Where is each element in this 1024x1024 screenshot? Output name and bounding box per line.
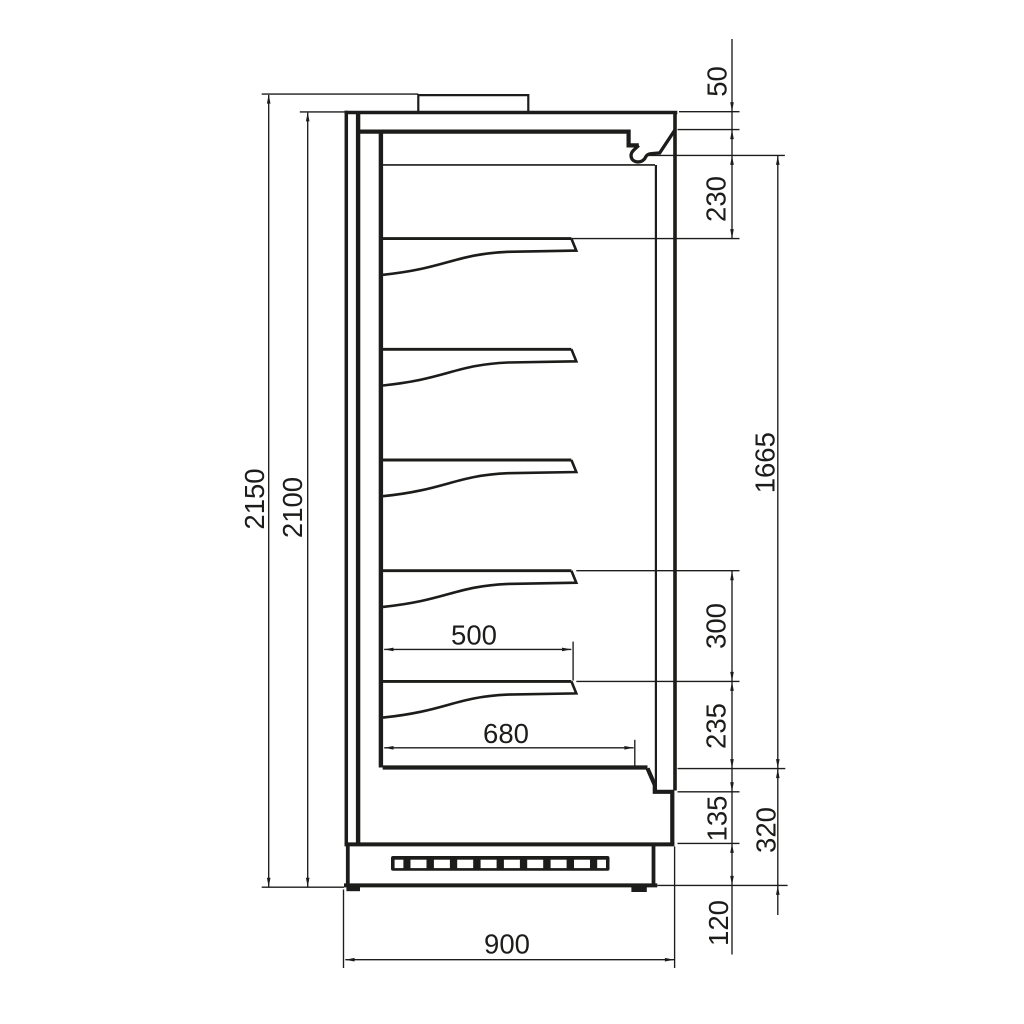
svg-text:680: 680 bbox=[483, 718, 529, 749]
svg-text:2150: 2150 bbox=[239, 468, 270, 529]
svg-text:900: 900 bbox=[484, 929, 530, 960]
svg-text:120: 120 bbox=[703, 900, 734, 946]
svg-text:135: 135 bbox=[702, 796, 733, 842]
svg-text:50: 50 bbox=[701, 66, 732, 97]
svg-text:300: 300 bbox=[701, 603, 732, 649]
svg-text:2100: 2100 bbox=[277, 477, 308, 538]
svg-text:230: 230 bbox=[701, 176, 732, 222]
svg-text:235: 235 bbox=[701, 703, 732, 749]
svg-text:1665: 1665 bbox=[749, 432, 780, 493]
svg-text:500: 500 bbox=[451, 620, 497, 651]
svg-text:320: 320 bbox=[751, 807, 782, 853]
